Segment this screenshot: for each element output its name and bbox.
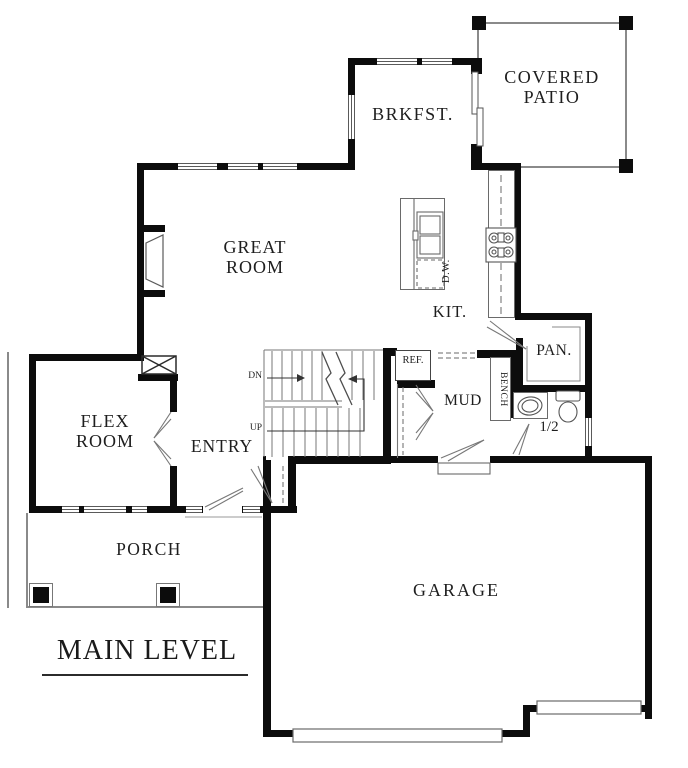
bath-sink-counter [513, 392, 548, 419]
kitchen-island [400, 198, 445, 290]
eave-line [7, 352, 9, 608]
wall-garage-left [263, 460, 271, 737]
patio-post-nw [472, 16, 486, 30]
porch-outline-bottom [26, 606, 266, 608]
window-entry-sidelight-right [243, 506, 260, 513]
room-label-great-room: GREAT ROOM [180, 238, 330, 278]
wall-flex-top [29, 354, 144, 361]
wall-ref-bottom [397, 380, 435, 388]
porch-post-2-core [160, 587, 176, 603]
garage-door-large [293, 729, 502, 742]
wall-garage-right [645, 456, 652, 719]
fixture-label-dishwasher: D.W. [441, 250, 457, 292]
window-greatroom-1 [178, 163, 217, 170]
wall-fireplace-bottom [137, 290, 165, 297]
garage-door-panels [293, 701, 641, 742]
window-entry-sidelight-left [186, 506, 202, 513]
window-brkfst-top-2 [422, 58, 452, 65]
upper-cabinet-dashed [438, 353, 477, 358]
garage-door-small [537, 701, 641, 714]
mud-room-doors [398, 384, 434, 458]
window-brkfst-top-1 [377, 58, 417, 65]
mud-garage-door [438, 440, 490, 474]
wall-garage-top-right [490, 456, 652, 463]
porch-outline-left [26, 513, 28, 608]
wall-vestibule [288, 460, 296, 513]
porch-post-1-core [33, 587, 49, 603]
window-flex-2 [84, 506, 126, 513]
stair-label-up: UP [238, 423, 262, 433]
patio-post-se [619, 159, 633, 173]
wall-flex-left [29, 354, 36, 513]
wall-garage-bottom-right-b [638, 705, 652, 712]
plan-title-underline [42, 674, 248, 676]
stair-down-arrow [267, 374, 305, 382]
toilet [556, 391, 580, 422]
window-greatroom-3 [263, 163, 297, 170]
wall-pantry-left [516, 338, 523, 392]
room-label-porch: PORCH [104, 540, 194, 559]
room-label-garage: GARAGE [399, 581, 514, 601]
stair-label-down: DN [238, 371, 262, 381]
wall-fireplace-top [137, 225, 165, 232]
window-flex-1 [62, 506, 79, 513]
wall-garage-bottom-a [263, 730, 298, 737]
room-label-brkfst: BRKFST. [348, 105, 478, 125]
wall-garage-top-left [391, 456, 438, 463]
patio-post-ne [619, 16, 633, 30]
wall-stairs-right [383, 348, 391, 464]
wall-pantry-bath-divider [512, 385, 592, 392]
window-flex-3 [132, 506, 147, 513]
room-label-flex-room: FLEX ROOM [45, 412, 165, 452]
room-label-mud: MUD [432, 392, 494, 409]
floor-plan: COVERED PATIO BRKFST. GREAT ROOM KIT. PA… [0, 0, 688, 768]
wall-garage-bottom-right-a [523, 705, 540, 712]
room-label-pantry: PAN. [523, 342, 585, 359]
room-label-kitchen: KIT. [415, 303, 485, 321]
wall-stairs-bottom-b [288, 456, 391, 464]
stair-up-arrow [267, 375, 364, 431]
fixture-label-refrigerator: REF. [395, 355, 431, 367]
plan-title: MAIN LEVEL [42, 636, 252, 667]
window-half-bath [585, 418, 592, 446]
staircase [264, 350, 383, 457]
patio-outline-top [478, 22, 626, 24]
room-label-half-bath: 1/2 [525, 419, 573, 436]
stair-break-lines [322, 352, 352, 405]
wall-greatroom-left [137, 163, 144, 361]
wall-flex-right-upper [170, 374, 177, 412]
fixture-label-bench: BENCH [493, 360, 508, 418]
room-label-covered-patio: COVERED PATIO [478, 68, 626, 108]
chase-x-box [142, 356, 176, 374]
wall-pantry-top [515, 313, 592, 320]
room-label-entry: ENTRY [182, 437, 262, 456]
kitchen-counter [488, 170, 515, 318]
window-greatroom-2 [228, 163, 258, 170]
fireplace-firebox [146, 235, 163, 287]
wall-garage-step [523, 712, 530, 737]
